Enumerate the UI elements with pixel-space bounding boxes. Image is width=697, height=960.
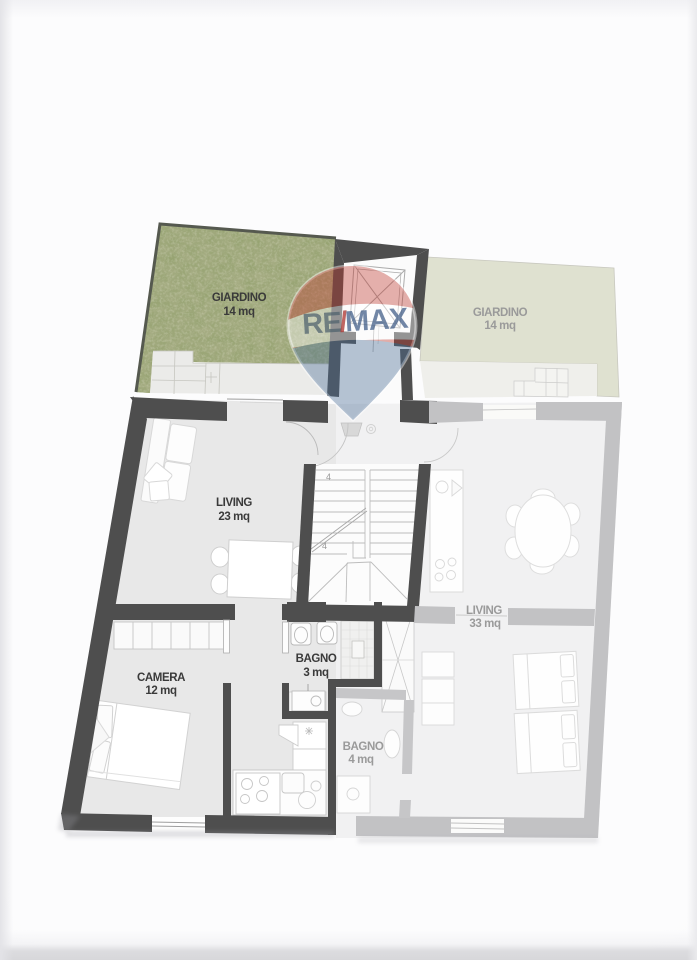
svg-text:3 mq: 3 mq <box>303 667 329 679</box>
svg-text:23 mq: 23 mq <box>218 511 250 523</box>
svg-text:14 mq: 14 mq <box>223 306 255 318</box>
svg-text:LIVING: LIVING <box>216 497 252 509</box>
svg-text:BAGNO: BAGNO <box>296 653 337 665</box>
svg-text:RE/MAX: RE/MAX <box>301 303 410 341</box>
svg-text:CAMERA: CAMERA <box>137 672 185 684</box>
svg-text:4: 4 <box>322 541 327 551</box>
svg-text:14 mq: 14 mq <box>484 320 516 332</box>
svg-text:LIVING: LIVING <box>466 605 502 617</box>
svg-text:12 mq: 12 mq <box>145 685 177 697</box>
svg-text:33 mq: 33 mq <box>469 618 501 630</box>
svg-text:GIARDINO: GIARDINO <box>473 307 528 319</box>
svg-text:BAGNO: BAGNO <box>343 741 384 753</box>
svg-text:4: 4 <box>326 472 331 482</box>
svg-text:4 mq: 4 mq <box>348 754 374 766</box>
svg-text:GIARDINO: GIARDINO <box>212 292 267 304</box>
